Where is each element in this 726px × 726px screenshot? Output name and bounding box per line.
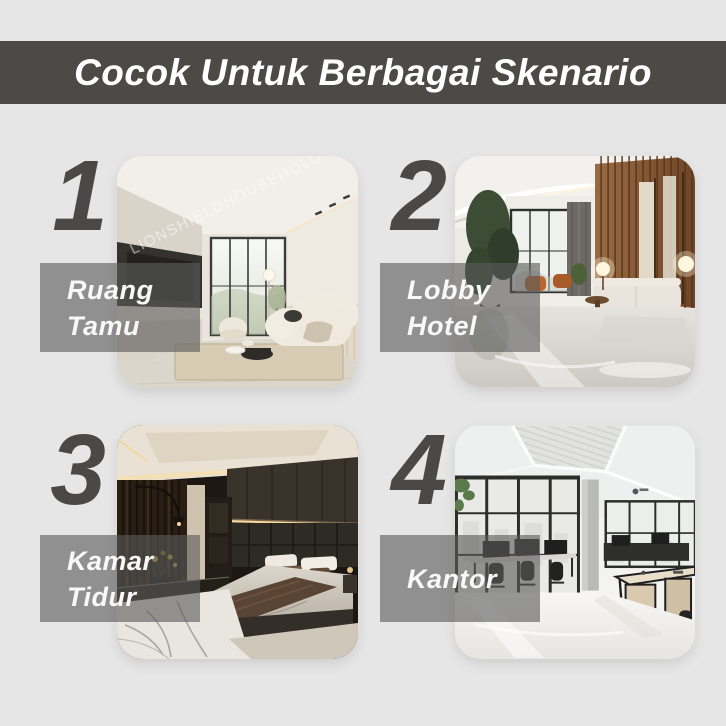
scenario-1-label-line2: Tamu <box>67 308 200 344</box>
scenario-4-label: Kantor <box>380 535 540 622</box>
scenario-3-label-line1: Kamar <box>67 543 200 579</box>
page-title: Cocok Untuk Berbagai Skenario <box>74 52 652 94</box>
scenario-2-number: 2 <box>379 146 459 246</box>
scenario-1-label: Ruang Tamu <box>40 263 200 352</box>
scenario-1-label-line1: Ruang <box>67 272 200 308</box>
scenario-3-number: 3 <box>38 420 118 520</box>
scenario-2-label: Lobby Hotel <box>380 263 540 352</box>
scenario-1-number: 1 <box>40 146 120 246</box>
scenario-4-number: 4 <box>379 420 459 520</box>
poster: Cocok Untuk Berbagai Skenario 1 <box>0 0 726 726</box>
header-band: Cocok Untuk Berbagai Skenario <box>0 41 726 104</box>
scenario-2-label-line1: Lobby <box>407 272 540 308</box>
scenario-4-label-line1: Kantor <box>407 561 540 597</box>
scenario-3-label-line2: Tidur <box>67 579 200 615</box>
scenario-3-label: Kamar Tidur <box>40 535 200 622</box>
scenario-2-label-line2: Hotel <box>407 308 540 344</box>
